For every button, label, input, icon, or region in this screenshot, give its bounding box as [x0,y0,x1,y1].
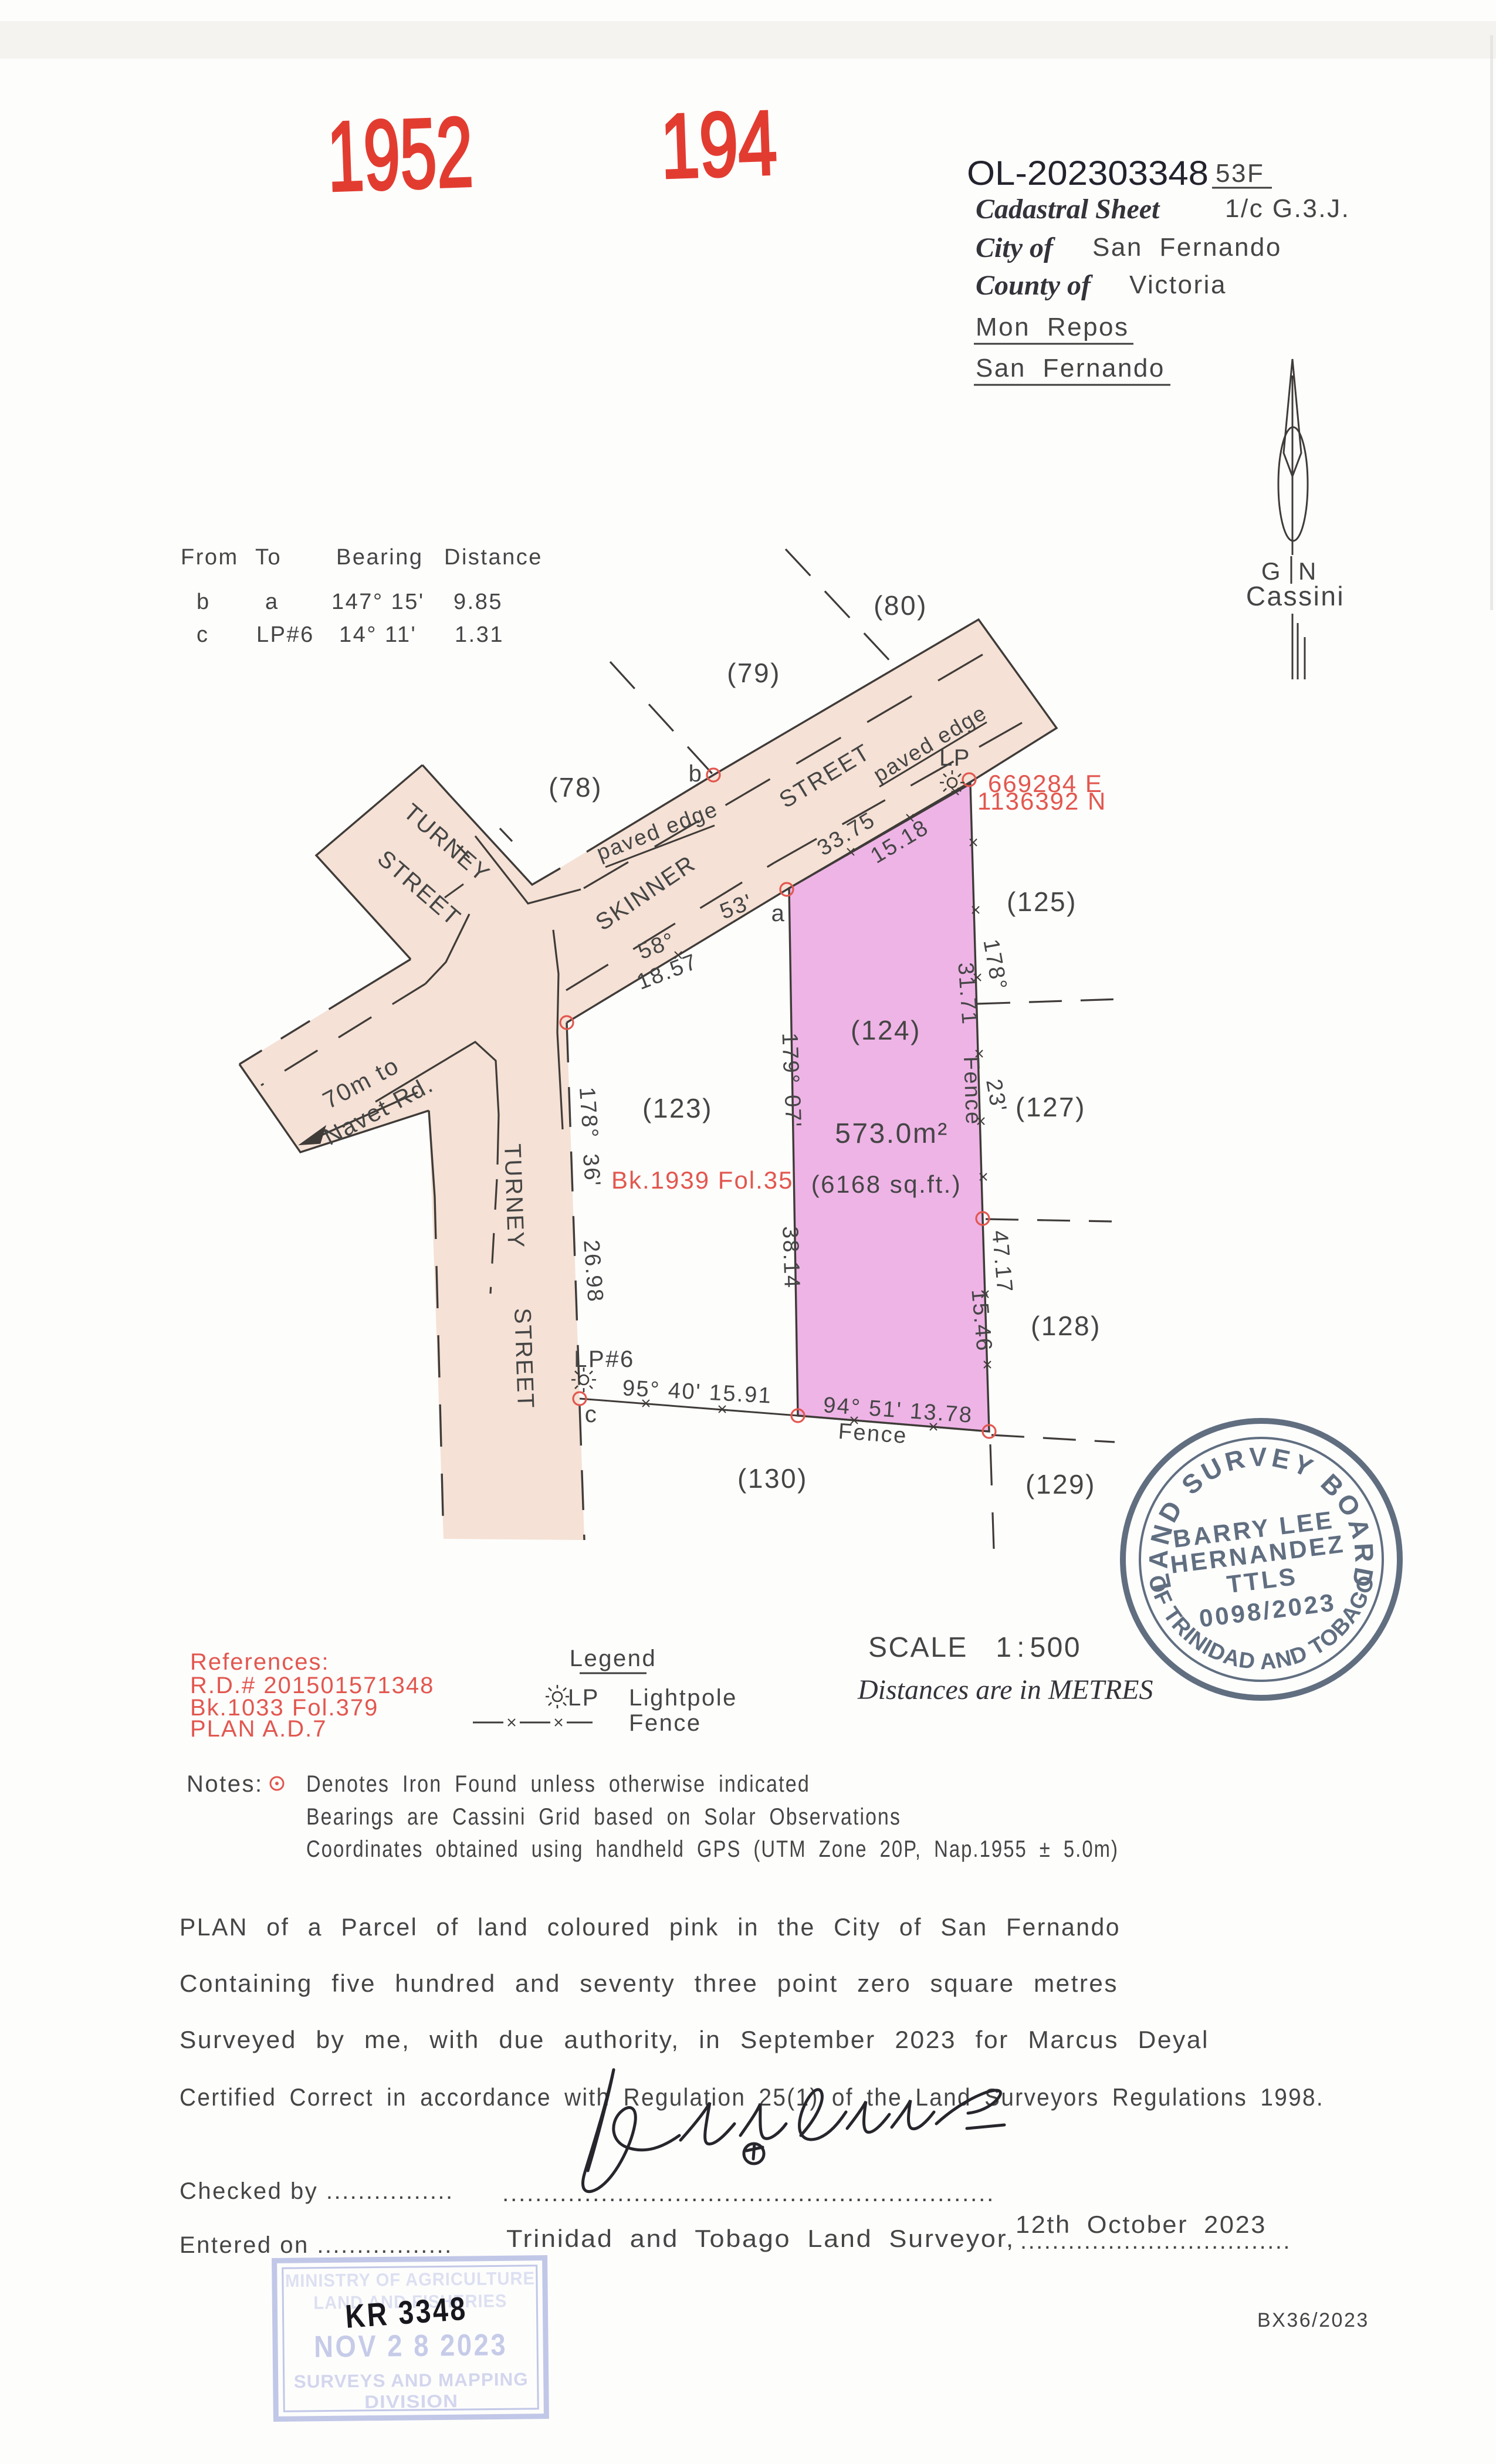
svg-text:Fence: Fence [959,1056,986,1126]
svg-text:53F: 53F [1216,159,1264,188]
svg-text:Distances are in METRES: Distances are in METRES [857,1674,1153,1705]
svg-text:(124): (124) [851,1015,921,1045]
svg-text:Trinidad and Tobago Land S: Trinidad and Tobago Land Surveyor, [506,2225,1015,2252]
svg-text:194: 194 [659,92,779,197]
svg-text:c: c [585,1402,598,1427]
svg-text:a: a [771,901,786,926]
svg-text:Bk.1939 Fol.35: Bk.1939 Fol.35 [611,1166,794,1194]
svg-text:Lightpole: Lightpole [629,1685,737,1711]
svg-text:DIVISION: DIVISION [364,2391,458,2412]
svg-text:Fence: Fence [629,1710,702,1736]
svg-text:1136392 N: 1136392 N [977,787,1106,815]
svg-text:Denotes Iron Found unless othe: Denotes Iron Found unless otherwise indi… [306,1771,810,1797]
svg-text:NOV 2 8 2023: NOV 2 8 2023 [314,2328,508,2364]
svg-text:(78): (78) [549,772,603,803]
svg-text:Fence: Fence [837,1419,908,1448]
svg-text:(79): (79) [727,658,781,688]
svg-text:12th October 2023: 12th October 2023 [1016,2211,1267,2238]
svg-text:(80): (80) [874,590,928,621]
svg-text:26.98: 26.98 [578,1239,607,1304]
svg-text:178°: 178° [574,1087,603,1140]
svg-text:City of: City of [976,232,1055,263]
svg-text:Certified Correct in accord: Certified Correct in accordance with Reg… [180,2083,1324,2111]
svg-text:San Fernando: San Fernando [1092,233,1282,262]
svg-text:..............................: ........................................… [502,2181,995,2206]
svg-text:38.14: 38.14 [777,1226,804,1289]
svg-text:San Fernando: San Fernando [976,354,1165,383]
svg-text:Containing five hundred and: Containing five hundred and seventy thre… [180,1969,1118,1997]
svg-text:To: To [255,545,282,570]
svg-text:OL-202303348: OL-202303348 [967,154,1209,192]
svg-text:9.85: 9.85 [453,590,503,614]
svg-text:County of: County of [976,270,1093,301]
svg-text:(125): (125) [1007,886,1077,917]
svg-text:b: b [689,761,703,787]
svg-text:MINISTRY OF AGRICULTURE: MINISTRY OF AGRICULTURE [285,2268,535,2291]
svg-text:Bearing: Bearing [336,545,423,570]
svg-text:179°: 179° [777,1033,803,1085]
svg-text:SURVEYS AND MAPPING: SURVEYS AND MAPPING [294,2369,529,2392]
svg-text:LP#6: LP#6 [574,1346,634,1372]
svg-text:Entered on .................: Entered on ................. [180,2232,453,2258]
svg-text:PLAN of a Parcel of land: PLAN of a Parcel of land coloured pink i… [180,1913,1121,1941]
svg-text:Notes:: Notes: [187,1771,263,1797]
svg-text:573.0m²: 573.0m² [835,1118,949,1149]
svg-text:14° 11': 14° 11' [339,622,417,647]
svg-text:36': 36' [578,1153,605,1188]
svg-text:b: b [197,590,211,614]
svg-text:(6168 sq.ft.): (6168 sq.ft.) [811,1170,962,1198]
svg-text:1/c G.3.J.: 1/c G.3.J. [1225,194,1350,223]
svg-text:Bearings are Cassini Grid base: Bearings are Cassini Grid based on Solar… [306,1804,901,1830]
svg-text:a: a [265,590,279,614]
svg-text:LP: LP [939,745,971,771]
svg-text:Checked by ................: Checked by ................ [180,2178,454,2204]
svg-text:Surveyed by me, with due: Surveyed by me, with due authority, in S… [180,2026,1209,2053]
svg-text:(129): (129) [1025,1469,1096,1500]
svg-text:Coordinates obtained using han: Coordinates obtained using handheld GPS … [306,1836,1119,1862]
svg-text:1.31: 1.31 [455,622,504,647]
svg-text:Mon Repos: Mon Repos [976,313,1129,341]
svg-text:(128): (128) [1031,1311,1101,1341]
svg-text:07': 07' [780,1094,805,1128]
svg-text:SCALE 1 : 500: SCALE 1 : 500 [868,1632,1081,1663]
svg-text:TURNEY: TURNEY [499,1143,529,1250]
svg-text:31.71: 31.71 [953,962,981,1026]
svg-text:BX36/2023: BX36/2023 [1257,2309,1369,2331]
svg-text:STREET: STREET [509,1308,539,1410]
svg-text:PLAN A.D.7: PLAN A.D.7 [190,1716,327,1742]
svg-text:LP: LP [568,1685,600,1711]
svg-text:(130): (130) [737,1463,808,1494]
svg-text:(127): (127) [1016,1092,1086,1122]
svg-text:Distance: Distance [444,545,543,570]
svg-text:(123): (123) [642,1093,713,1123]
svg-text:From: From [181,545,239,570]
svg-text:Cassini: Cassini [1246,581,1345,611]
svg-text:147° 15': 147° 15' [331,590,425,614]
svg-text:Victoria: Victoria [1129,270,1227,299]
svg-text:Cadastral Sheet: Cadastral Sheet [976,194,1160,225]
svg-text:LP#6: LP#6 [256,622,314,647]
svg-text:c: c [197,622,209,647]
svg-text:Legend: Legend [570,1646,656,1671]
svg-text:References:: References: [190,1649,330,1675]
svg-text:1952: 1952 [326,96,475,212]
